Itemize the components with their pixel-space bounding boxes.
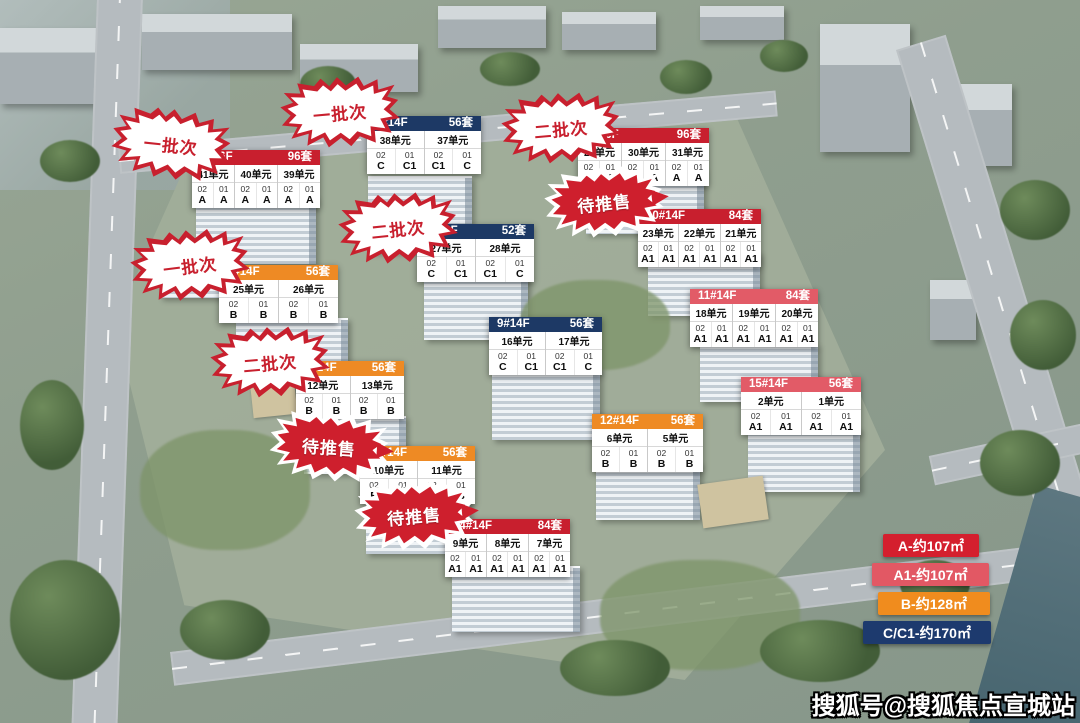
unit-type-letter: A1 bbox=[832, 421, 861, 435]
burst-badge-ts10: 待推售 bbox=[549, 169, 658, 236]
door-number: 01 bbox=[688, 161, 709, 172]
unit-type-letter: C bbox=[506, 268, 535, 282]
unit-name: 17单元 bbox=[546, 332, 602, 350]
burst-label: 待推售 bbox=[275, 414, 383, 477]
building-panel-header: 11#14F84套 bbox=[690, 289, 818, 304]
door-number: 01 bbox=[300, 183, 321, 194]
door-number: 01 bbox=[700, 242, 720, 253]
unit-door-cell: 02C bbox=[417, 257, 446, 282]
unit-type-letter: B bbox=[279, 309, 308, 323]
unit-door-cell: 02A1 bbox=[638, 242, 658, 267]
unit-name: 23单元 bbox=[638, 224, 678, 242]
door-number: 02 bbox=[296, 394, 322, 405]
unit-type-letter: A1 bbox=[659, 253, 679, 267]
building-panel-b11: 11#14F84套18单元02A101A119单元02A101A120单元02A… bbox=[690, 289, 818, 347]
unit-column: 28单元02C101C bbox=[475, 239, 534, 282]
burst-badge-ts14: 待推售 bbox=[360, 483, 468, 548]
unit-door-cell: 01C bbox=[505, 257, 535, 282]
building-panel-body: 18单元02A101A119单元02A101A120单元02A101A1 bbox=[690, 304, 818, 347]
unit-type-letter: C1 bbox=[425, 160, 453, 174]
legend-row-2: A1-约107㎡ bbox=[872, 563, 989, 586]
unit-door-cell: 02A1 bbox=[690, 322, 711, 347]
building-unit-count: 84套 bbox=[729, 210, 753, 223]
building-panel-b9: 9#14F56套16单元02C01C117单元02C101C bbox=[489, 317, 602, 375]
unit-type-letter: A1 bbox=[721, 253, 741, 267]
door-number: 01 bbox=[506, 257, 535, 268]
unit-door-cell: 02C bbox=[367, 149, 395, 174]
unit-door-cell: 01B bbox=[248, 298, 278, 323]
unit-type-letter: A1 bbox=[529, 563, 549, 577]
unit-door-cell: 02A1 bbox=[741, 410, 770, 435]
unit-door-cell: 02B bbox=[351, 394, 377, 419]
building-panel-header: 9#14F56套 bbox=[489, 317, 602, 332]
unit-type-letter: A1 bbox=[466, 563, 486, 577]
door-number: 02 bbox=[192, 183, 213, 194]
unit-type-letter: C bbox=[417, 268, 446, 282]
legend-row-1: A-约107㎡ bbox=[883, 534, 979, 557]
unit-type-letter: A1 bbox=[741, 421, 770, 435]
unit-door-cell: 02B bbox=[279, 298, 308, 323]
building-name: 11#14F bbox=[698, 290, 736, 303]
watermark-text: 搜狐号@搜狐焦点宣城站 bbox=[812, 686, 1075, 721]
door-number: 01 bbox=[550, 552, 570, 563]
burst-label: 二批次 bbox=[216, 330, 324, 395]
unit-name: 1单元 bbox=[802, 392, 862, 410]
unit-name: 7单元 bbox=[529, 534, 570, 552]
burst-badge-pc8: 二批次 bbox=[216, 330, 324, 395]
unit-door-cell: 02B bbox=[592, 447, 619, 472]
unit-name: 28单元 bbox=[476, 239, 534, 257]
door-number: 01 bbox=[453, 149, 481, 160]
unit-type-letter: A1 bbox=[741, 253, 761, 267]
unit-type-letter: A bbox=[235, 194, 256, 208]
unit-type-letter: A1 bbox=[679, 253, 699, 267]
unit-name: 6单元 bbox=[592, 429, 647, 447]
door-number: 01 bbox=[518, 350, 546, 361]
unit-door-cell: 01C1 bbox=[395, 149, 424, 174]
unit-door-cell: 01C1 bbox=[446, 257, 476, 282]
unit-name: 2单元 bbox=[741, 392, 801, 410]
building-panel-body: 16单元02C01C117单元02C101C bbox=[489, 332, 602, 375]
door-number: 01 bbox=[620, 447, 647, 458]
trees bbox=[10, 560, 120, 680]
door-number: 01 bbox=[309, 298, 338, 309]
building-panel-body: 23单元02A101A122单元02A101A121单元02A101A1 bbox=[638, 224, 761, 267]
building-unit-count: 56套 bbox=[449, 117, 473, 130]
door-number: 02 bbox=[487, 552, 507, 563]
building-unit-count: 56套 bbox=[829, 378, 853, 391]
unit-type-letter: A1 bbox=[776, 333, 797, 347]
trees bbox=[760, 620, 880, 682]
building-name: 15#14F bbox=[749, 378, 788, 391]
unit-door-cell: 01A1 bbox=[831, 410, 861, 435]
door-number: 01 bbox=[466, 552, 486, 563]
unit-door-cell: 02A1 bbox=[802, 410, 831, 435]
unit-door-cell: 02A bbox=[192, 183, 213, 208]
door-number: 01 bbox=[798, 322, 819, 333]
unit-type-letter: A bbox=[688, 172, 709, 186]
building-name: 9#14F bbox=[497, 318, 530, 331]
unit-door-cell: 01B bbox=[675, 447, 703, 472]
unit-door-cell: 01B bbox=[377, 394, 404, 419]
door-number: 01 bbox=[249, 298, 278, 309]
door-number: 02 bbox=[776, 322, 797, 333]
unit-door-cell: 01A bbox=[687, 161, 709, 186]
unit-name: 20单元 bbox=[776, 304, 818, 322]
unit-column: 39单元02A01A bbox=[277, 165, 320, 208]
unit-type-letter: A1 bbox=[508, 563, 528, 577]
building-unit-count: 56套 bbox=[671, 415, 695, 428]
unit-type-letter: C1 bbox=[546, 361, 574, 375]
trees bbox=[660, 60, 712, 94]
building-unit-count: 52套 bbox=[502, 225, 526, 238]
aerial-masterplan-image: 一批次一批次一批次二批次二批次二批次待推售待推售待推售 1#16F96套41单元… bbox=[0, 0, 1080, 723]
door-number: 01 bbox=[659, 242, 679, 253]
unit-name: 37单元 bbox=[425, 131, 482, 149]
unit-door-cell: 02B bbox=[648, 447, 675, 472]
building-name: 12#14F bbox=[600, 415, 639, 428]
building-panel-body: 2单元02A101A11单元02A101A1 bbox=[741, 392, 861, 435]
door-number: 02 bbox=[476, 257, 505, 268]
unit-door-cell: 02A bbox=[235, 183, 256, 208]
door-number: 02 bbox=[529, 552, 549, 563]
building-unit-count: 84套 bbox=[786, 290, 810, 303]
unit-type-letter: B bbox=[351, 405, 377, 419]
unit-type-letter: A1 bbox=[733, 333, 754, 347]
building-unit-count: 96套 bbox=[288, 151, 312, 164]
unit-door-cell: 02A1 bbox=[733, 322, 754, 347]
unit-type-letter: B bbox=[249, 309, 278, 323]
unit-type-letter: A1 bbox=[755, 333, 776, 347]
unit-column: 37单元02C101C bbox=[424, 131, 482, 174]
trees bbox=[480, 52, 540, 86]
unit-door-cell: 02C1 bbox=[425, 149, 453, 174]
unit-door-cell: 02A1 bbox=[721, 242, 741, 267]
unit-name: 19单元 bbox=[733, 304, 775, 322]
burst-badge-ts13: 待推售 bbox=[275, 414, 383, 477]
warehouse-building bbox=[438, 6, 546, 48]
unit-type-letter: A bbox=[192, 194, 213, 208]
unit-door-cell: 02A bbox=[666, 161, 687, 186]
warehouse-building bbox=[142, 14, 292, 70]
burst-badge-pc1: 一批次 bbox=[116, 111, 225, 178]
unit-door-cell: 01A1 bbox=[507, 552, 528, 577]
gray-tower-building bbox=[820, 24, 910, 152]
door-number: 02 bbox=[638, 242, 658, 253]
unit-column: 8单元02A101A1 bbox=[486, 534, 528, 577]
unit-door-cell: 01A1 bbox=[797, 322, 819, 347]
building-panel-b15: 15#14F56套2单元02A101A11单元02A101A1 bbox=[741, 377, 861, 435]
burst-label: 二批次 bbox=[507, 96, 615, 161]
door-number: 02 bbox=[648, 447, 675, 458]
unit-door-cell: 01A1 bbox=[711, 322, 733, 347]
unit-type-letter: A1 bbox=[638, 253, 658, 267]
unit-column: 16单元02C01C1 bbox=[489, 332, 545, 375]
door-number: 02 bbox=[367, 149, 395, 160]
door-number: 01 bbox=[771, 410, 800, 421]
unit-type-letter: B bbox=[219, 309, 248, 323]
door-number: 02 bbox=[666, 161, 687, 172]
building-unit-count: 84套 bbox=[538, 520, 562, 533]
door-number: 02 bbox=[690, 322, 711, 333]
unit-name: 13单元 bbox=[351, 376, 405, 394]
building-unit-count: 56套 bbox=[443, 447, 467, 460]
unit-type-letter: C1 bbox=[518, 361, 546, 375]
burst-badge-pc5: 二批次 bbox=[507, 96, 615, 161]
unit-door-cell: 02A bbox=[278, 183, 299, 208]
door-number: 02 bbox=[417, 257, 446, 268]
unit-door-cell: 02A1 bbox=[776, 322, 797, 347]
unit-type-letter: A1 bbox=[445, 563, 465, 577]
door-number: 02 bbox=[279, 298, 308, 309]
building-unit-count: 96套 bbox=[677, 129, 701, 142]
unit-door-cell: 02A1 bbox=[529, 552, 549, 577]
unit-door-cell: 01A bbox=[213, 183, 235, 208]
unit-type-letter: A1 bbox=[690, 333, 711, 347]
unit-name: 31单元 bbox=[666, 143, 709, 161]
trees bbox=[1010, 300, 1076, 370]
unit-column: 21单元02A101A1 bbox=[720, 224, 761, 267]
trees bbox=[180, 600, 270, 660]
unit-name: 30单元 bbox=[622, 143, 665, 161]
trees bbox=[560, 640, 670, 696]
unit-name: 16单元 bbox=[489, 332, 545, 350]
burst-label: 一批次 bbox=[286, 80, 394, 145]
burst-label: 待推售 bbox=[549, 169, 658, 236]
unit-type-letter: A bbox=[257, 194, 278, 208]
door-number: 01 bbox=[323, 394, 349, 405]
unit-type-letter: C1 bbox=[447, 268, 476, 282]
door-number: 02 bbox=[219, 298, 248, 309]
burst-badge-pc6: 二批次 bbox=[343, 195, 452, 262]
unit-name: 5单元 bbox=[648, 429, 703, 447]
legend-row-3: B-约128㎡ bbox=[878, 592, 990, 615]
door-number: 02 bbox=[578, 161, 599, 172]
unit-column: 19单元02A101A1 bbox=[732, 304, 775, 347]
building-unit-count: 56套 bbox=[570, 318, 594, 331]
unit-type-letter: A1 bbox=[550, 563, 570, 577]
unit-door-cell: 01A bbox=[256, 183, 278, 208]
unit-door-cell: 01A1 bbox=[770, 410, 800, 435]
unit-type-letter: B bbox=[592, 458, 619, 472]
unit-type-letter: A bbox=[300, 194, 321, 208]
residential-tower bbox=[748, 428, 860, 492]
unit-door-cell: 01A1 bbox=[549, 552, 570, 577]
unit-column: 6单元02B01B bbox=[592, 429, 647, 472]
unit-door-cell: 01C1 bbox=[517, 350, 546, 375]
unit-type-letter: C bbox=[489, 361, 517, 375]
unit-door-cell: 01B bbox=[308, 298, 338, 323]
unit-door-cell: 02B bbox=[219, 298, 248, 323]
door-number: 02 bbox=[592, 447, 619, 458]
unit-door-cell: 01A1 bbox=[465, 552, 486, 577]
door-number: 01 bbox=[508, 552, 528, 563]
building-panel-header: 12#14F56套 bbox=[592, 414, 703, 429]
door-number: 01 bbox=[396, 149, 424, 160]
door-number: 02 bbox=[425, 149, 453, 160]
unit-type-letter: A bbox=[666, 172, 687, 186]
door-number: 02 bbox=[235, 183, 256, 194]
unit-name: 8单元 bbox=[487, 534, 528, 552]
door-number: 02 bbox=[546, 350, 574, 361]
unit-door-cell: 01A1 bbox=[754, 322, 776, 347]
clubhouse-courtyard bbox=[697, 476, 768, 529]
burst-badge-pc2: 一批次 bbox=[286, 80, 394, 145]
trees bbox=[980, 430, 1060, 496]
unit-door-cell: 01A1 bbox=[740, 242, 761, 267]
unit-type-letter: B bbox=[676, 458, 703, 472]
warehouse-building bbox=[700, 6, 784, 40]
unit-column: 40单元02A01A bbox=[234, 165, 277, 208]
unit-type-letter: A1 bbox=[700, 253, 720, 267]
door-number: 01 bbox=[832, 410, 861, 421]
building-panel-body: 38单元02C01C137单元02C101C bbox=[367, 131, 481, 174]
trees bbox=[760, 40, 808, 72]
unit-door-cell: 02C1 bbox=[476, 257, 505, 282]
unit-type-letter: C1 bbox=[476, 268, 505, 282]
unit-door-cell: 01C bbox=[452, 149, 481, 174]
unit-door-cell: 02A1 bbox=[679, 242, 699, 267]
unit-type-letter: C bbox=[367, 160, 395, 174]
door-number: 02 bbox=[489, 350, 517, 361]
door-number: 02 bbox=[351, 394, 377, 405]
unit-column: 20单元02A101A1 bbox=[775, 304, 818, 347]
building-panel-body: 9单元02A101A18单元02A101A17单元02A101A1 bbox=[445, 534, 570, 577]
unit-column: 9单元02A101A1 bbox=[445, 534, 486, 577]
door-number: 02 bbox=[741, 410, 770, 421]
unit-door-cell: 01A bbox=[299, 183, 321, 208]
unit-door-cell: 01A1 bbox=[658, 242, 679, 267]
door-number: 02 bbox=[733, 322, 754, 333]
warehouse-building bbox=[562, 12, 656, 50]
trees bbox=[40, 140, 100, 182]
unit-type-letter: A1 bbox=[798, 333, 819, 347]
unit-door-cell: 01C bbox=[574, 350, 603, 375]
door-number: 01 bbox=[741, 242, 761, 253]
unit-type-letter: A1 bbox=[712, 333, 733, 347]
door-number: 01 bbox=[676, 447, 703, 458]
door-number: 01 bbox=[575, 350, 603, 361]
unit-name: 18单元 bbox=[690, 304, 732, 322]
door-number: 02 bbox=[721, 242, 741, 253]
burst-label: 二批次 bbox=[343, 195, 452, 262]
door-number: 01 bbox=[712, 322, 733, 333]
unit-name: 39单元 bbox=[278, 165, 320, 183]
unit-door-cell: 02C bbox=[489, 350, 517, 375]
unit-type-letter: C bbox=[453, 160, 481, 174]
unit-column: 5单元02B01B bbox=[647, 429, 703, 472]
door-number: 02 bbox=[278, 183, 299, 194]
building-unit-count: 56套 bbox=[372, 362, 396, 375]
unit-column: 23单元02A101A1 bbox=[638, 224, 678, 267]
unit-type-letter: A bbox=[214, 194, 235, 208]
unit-type-letter: A1 bbox=[487, 563, 507, 577]
unit-door-cell: 02C1 bbox=[546, 350, 574, 375]
unit-column: 31单元02A01A bbox=[665, 143, 709, 186]
unit-name: 26单元 bbox=[279, 280, 338, 298]
unit-column: 38单元02C01C1 bbox=[367, 131, 424, 174]
trees bbox=[1000, 180, 1070, 240]
unit-name: 40单元 bbox=[235, 165, 277, 183]
burst-label: 待推售 bbox=[360, 483, 468, 548]
unit-name: 11单元 bbox=[418, 461, 475, 479]
unit-column: 7单元02A101A1 bbox=[528, 534, 570, 577]
door-number: 01 bbox=[214, 183, 235, 194]
door-number: 01 bbox=[257, 183, 278, 194]
unit-door-cell: 01A1 bbox=[699, 242, 720, 267]
unit-type-letter: A bbox=[278, 194, 299, 208]
unit-column: 26单元02B01B bbox=[278, 280, 338, 323]
door-number: 02 bbox=[802, 410, 831, 421]
unit-column: 13单元02B01B bbox=[350, 376, 405, 419]
unit-type-letter: A1 bbox=[771, 421, 800, 435]
unit-door-cell: 01B bbox=[322, 394, 349, 419]
unit-door-cell: 01B bbox=[619, 447, 647, 472]
unit-column: 18单元02A101A1 bbox=[690, 304, 732, 347]
unit-door-cell: 02A1 bbox=[487, 552, 507, 577]
building-unit-count: 56套 bbox=[306, 266, 330, 279]
building-panel-header: 15#14F56套 bbox=[741, 377, 861, 392]
unit-type-letter: B bbox=[648, 458, 675, 472]
unit-column: 1单元02A101A1 bbox=[801, 392, 862, 435]
burst-label: 一批次 bbox=[116, 111, 225, 178]
unit-type-letter: A1 bbox=[802, 421, 831, 435]
unit-type-letter: C1 bbox=[396, 160, 424, 174]
unit-type-letter: B bbox=[378, 405, 404, 419]
door-number: 02 bbox=[679, 242, 699, 253]
legend-row-4: C/C1-约170㎡ bbox=[863, 621, 991, 644]
unit-name: 21单元 bbox=[721, 224, 761, 242]
door-number: 01 bbox=[447, 257, 476, 268]
unit-column: 2单元02A101A1 bbox=[741, 392, 801, 435]
building-panel-b12: 12#14F56套6单元02B01B5单元02B01B bbox=[592, 414, 703, 472]
unit-column: 22单元02A101A1 bbox=[678, 224, 719, 267]
residential-tower bbox=[492, 366, 600, 440]
building-panel-body: 6单元02B01B5单元02B01B bbox=[592, 429, 703, 472]
unit-type-letter: B bbox=[309, 309, 338, 323]
trees bbox=[20, 380, 84, 470]
door-number: 01 bbox=[378, 394, 404, 405]
unit-column: 17单元02C101C bbox=[545, 332, 602, 375]
door-number: 01 bbox=[755, 322, 776, 333]
unit-type-letter: B bbox=[620, 458, 647, 472]
unit-name: 22单元 bbox=[679, 224, 719, 242]
door-number: 02 bbox=[445, 552, 465, 563]
unit-door-cell: 02A1 bbox=[445, 552, 465, 577]
unit-type-letter: C bbox=[575, 361, 603, 375]
